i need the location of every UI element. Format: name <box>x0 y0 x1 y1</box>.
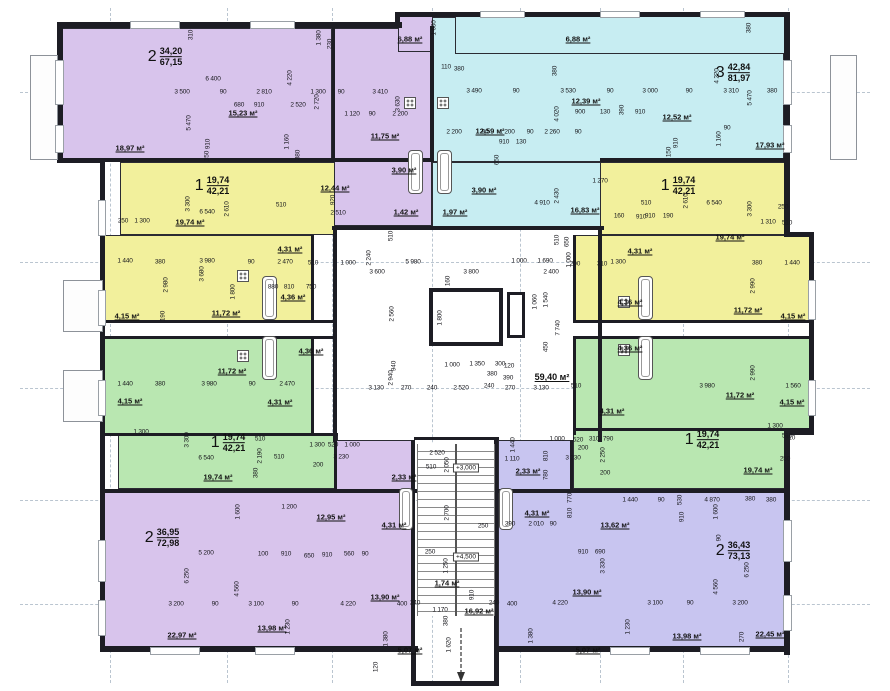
dimension-label: 190 <box>160 311 167 321</box>
room-area-label: 12,52 м² <box>663 113 692 122</box>
room-area-label: 4,31 м² <box>268 398 293 407</box>
balcony-outline <box>63 280 103 332</box>
apartment-unit-label: 119,7442,21 <box>211 432 245 454</box>
window-symbol <box>55 60 64 105</box>
dimension-label: 3 310 <box>723 88 738 95</box>
dimension-label: 100 <box>258 551 268 558</box>
dimension-label: 5 470 <box>747 90 754 105</box>
unit-area-fraction: 19,7442,21 <box>223 432 246 454</box>
dimension-label: 1 200 <box>281 504 296 511</box>
dimension-label: 200 <box>313 462 323 469</box>
dimension-label: 90 <box>527 129 534 136</box>
dimension-label: 1 300 <box>610 259 625 266</box>
dimension-label: 3 330 <box>600 558 607 573</box>
room-area-label: 2,33 м² <box>516 467 541 476</box>
unit-room-count: 2 <box>716 543 725 559</box>
dimension-label: 2 720 <box>314 94 321 109</box>
dimension-label: 6 540 <box>198 455 213 462</box>
dimension-label: 910 <box>645 213 655 220</box>
dimension-label: 3 230 <box>333 454 348 461</box>
dimension-label: 2 200 <box>446 129 461 136</box>
apartment-unit-label: 236,9572,98 <box>145 527 179 549</box>
apartment-unit-label: 119,7442,21 <box>685 429 719 451</box>
dimension-label: 2 610 <box>224 201 231 216</box>
dimension-label: 1 000 <box>549 436 564 443</box>
balcony-outline <box>30 55 58 160</box>
dimension-label: 3 630 <box>395 96 402 111</box>
stove-icon <box>404 97 416 109</box>
room-area-label: 1,42 м² <box>394 208 419 217</box>
dimension-label: 790 <box>603 436 613 443</box>
dimension-label: 380 <box>752 260 762 267</box>
dimension-label: 510 <box>554 235 561 245</box>
dimension-label: 380 <box>745 496 755 503</box>
dimension-label: 880 <box>268 284 278 291</box>
dimension-label: 250 <box>118 218 128 225</box>
dimension-label: 510 <box>276 202 286 209</box>
dimension-label: 380 <box>155 259 165 266</box>
dimension-label: 2 810 <box>256 89 271 96</box>
dimension-label: 1 000 <box>511 258 526 265</box>
dimension-label: 90 <box>686 88 693 95</box>
wall-segment <box>395 12 400 28</box>
room-area-label: 16,92 м² <box>465 607 494 616</box>
dimension-label: 200 <box>600 470 610 477</box>
dimension-label: 1 300 <box>133 429 148 436</box>
dimension-label: 3 200 <box>732 600 747 607</box>
apartment-region-apt-1room-right-lower <box>575 338 813 430</box>
wall-segment <box>573 320 813 323</box>
dimension-label: 270 <box>739 632 746 642</box>
dimension-label: 690 <box>595 549 605 556</box>
room-area-label: 12,44 м² <box>321 184 350 193</box>
apartment-unit-label: 234,2067,15 <box>148 46 182 68</box>
dimension-label: 90 <box>212 601 219 608</box>
dimension-label: 750 <box>306 284 316 291</box>
unit-total-area: 42,21 <box>697 441 720 451</box>
unit-living-area: 19,74 <box>673 175 696 186</box>
room-area-label: 5,07 м² <box>398 646 423 655</box>
wall-segment <box>311 235 314 322</box>
dimension-label: 3 980 <box>699 383 714 390</box>
dimension-label: 250 <box>778 204 788 211</box>
dimension-label: 90 <box>220 89 227 96</box>
floor-level-mark: +4,500 <box>453 553 479 562</box>
stove-icon <box>237 350 249 362</box>
dimension-label: 1 560 <box>785 383 800 390</box>
dimension-label: 4 560 <box>234 581 241 596</box>
window-symbol <box>700 647 750 655</box>
window-symbol <box>700 11 745 18</box>
dimension-label: 4 220 <box>552 600 567 607</box>
unit-room-count: 1 <box>195 178 204 194</box>
stove-icon <box>237 270 249 282</box>
dimension-label: 3 200 <box>168 601 183 608</box>
dimension-label: 130 <box>600 109 610 116</box>
dimension-label: 380 <box>767 88 777 95</box>
dimension-label: 910 <box>469 590 476 600</box>
window-symbol <box>98 540 106 582</box>
dimension-label: 530 <box>677 495 684 505</box>
dimension-label: 380 <box>746 23 753 33</box>
dimension-label: 1 000 <box>344 442 359 449</box>
window-symbol <box>808 280 816 320</box>
dimension-label: 770 <box>567 493 574 503</box>
dimension-label: 1 300 <box>309 442 324 449</box>
dimension-label: 510 <box>641 200 651 207</box>
wall-segment <box>573 336 813 339</box>
dimension-label: 130 <box>516 139 526 146</box>
room-area-label: 6,88 м² <box>398 35 423 44</box>
window-symbol <box>250 21 295 29</box>
dimension-label: 3 680 <box>199 266 206 281</box>
dimension-label: 3 980 <box>201 381 216 388</box>
dimension-label: 4 910 <box>534 200 549 207</box>
dimension-label: 560 <box>344 551 354 558</box>
dimension-label: 810 <box>567 508 574 518</box>
dimension-label: 2 510 <box>330 210 345 217</box>
unit-area-fraction: 42,8481,97 <box>728 62 751 84</box>
dimension-label: 380 <box>155 381 165 388</box>
dimension-label: 380 <box>443 616 450 626</box>
dimension-label: 310 <box>188 30 195 40</box>
dimension-label: 5 980 <box>405 259 420 266</box>
dimension-label: 910 <box>254 102 264 109</box>
unit-room-count: 3 <box>716 65 725 81</box>
dimension-label: 910 <box>281 551 291 558</box>
unit-total-area: 81,97 <box>728 74 751 84</box>
dimension-label: 1 540 <box>543 292 550 307</box>
room-area-label: 11,72 м² <box>734 306 762 315</box>
dimension-label: 910 <box>679 512 686 522</box>
unit-total-area: 42,21 <box>223 444 246 454</box>
dimension-label: 1 250 <box>443 558 450 573</box>
unit-area-fraction: 34,2067,15 <box>160 46 183 68</box>
dimension-label: 90 <box>575 129 582 136</box>
room-area-label: 11,72 м² <box>212 309 240 318</box>
unit-living-area: 42,84 <box>728 62 751 73</box>
dimension-label: 200 <box>578 445 588 452</box>
dimension-label: 6 250 <box>744 562 751 577</box>
window-symbol <box>610 647 650 655</box>
dimension-label: 2 400 <box>543 269 558 276</box>
dimension-label: 270 <box>505 385 515 392</box>
room-area-label: 11,72 м² <box>218 367 246 376</box>
room-area-label: 19,74 м² <box>204 473 233 482</box>
window-symbol <box>98 380 106 416</box>
dimension-label: 510 <box>388 231 395 241</box>
bathtub-icon <box>262 336 277 380</box>
dimension-label: 1 230 <box>625 619 632 634</box>
dimension-label: 3 530 <box>560 88 575 95</box>
dimension-label: 390 <box>619 105 626 115</box>
dimension-label: 240 <box>410 600 420 607</box>
floor-level-mark: +3,000 <box>453 464 479 473</box>
dimension-label: 1 300 <box>134 218 149 225</box>
dimension-label: 1 800 <box>230 284 237 299</box>
dimension-label: 1 000 <box>444 362 459 369</box>
dimension-label: 2 700 <box>444 505 451 520</box>
dimension-label: 2 010 <box>528 521 543 528</box>
dimension-label: 90 <box>338 89 345 96</box>
dimension-label: 2 520 <box>290 102 305 109</box>
room-area-label: 18,97 м² <box>116 144 145 153</box>
room-area-label: 1,97 м² <box>443 208 468 217</box>
wall-segment <box>570 440 573 490</box>
dimension-label: 3 980 <box>199 258 214 265</box>
dimension-label: 1 380 <box>528 628 535 643</box>
dimension-label: 2 990 <box>750 365 757 380</box>
room-area-label: 11,72 м² <box>726 391 754 400</box>
wall-segment <box>332 226 604 230</box>
dimension-label: 240 <box>484 383 494 390</box>
dimension-label: 4 870 <box>704 497 719 504</box>
dimension-label: 240 <box>427 385 437 392</box>
dimension-label: 1 380 <box>383 631 390 646</box>
wall-segment <box>100 489 418 493</box>
window-symbol <box>98 290 106 326</box>
room-area-label: 11,75 м² <box>371 132 399 141</box>
room-area-label: 4,36 м² <box>618 344 643 353</box>
dimension-label: 900 <box>575 109 585 116</box>
dimension-label: 4 220 <box>340 601 355 608</box>
dimension-label: 200 <box>570 261 580 268</box>
unit-area-fraction: 19,7442,21 <box>697 429 720 451</box>
bathtub-icon <box>437 150 452 194</box>
window-symbol <box>55 125 64 153</box>
dimension-label: 90 <box>482 129 489 136</box>
unit-area-fraction: 19,7442,21 <box>673 175 696 197</box>
dimension-label: 910 <box>499 139 509 146</box>
dimension-label: 1 160 <box>716 131 723 146</box>
dimension-label: 6 540 <box>706 200 721 207</box>
wall-segment <box>100 336 335 339</box>
wall-segment <box>494 489 790 493</box>
dimension-label: 1 380 <box>316 30 323 45</box>
unit-living-area: 19,74 <box>207 175 230 186</box>
dimension-label: 2 940 <box>388 370 395 385</box>
dimension-label: 380 <box>552 66 559 76</box>
dimension-label: 390 <box>503 375 513 382</box>
dimension-label: 380 <box>454 66 464 73</box>
dimension-label: 2 470 <box>279 381 294 388</box>
room-area-label: 13,98 м² <box>673 632 702 641</box>
dimension-label: 2 190 <box>257 448 264 463</box>
dimension-label: 160 <box>445 276 452 286</box>
unit-room-count: 1 <box>211 435 220 451</box>
wall-segment <box>57 158 434 162</box>
room-area-label: 3,90 м² <box>472 186 497 195</box>
room-area-label: 59,40 м² <box>535 372 570 382</box>
room-area-label: 4,31 м² <box>600 407 625 416</box>
dimension-label: 110 <box>441 64 451 71</box>
dimension-label: 4 020 <box>554 106 561 121</box>
room-area-label: 5,07 м² <box>576 646 601 655</box>
dimension-label: 510 <box>274 454 284 461</box>
dimension-label: 1 310 <box>760 219 775 226</box>
room-area-label: 4,31 м² <box>525 509 550 518</box>
dimension-label: 1 200 <box>499 129 514 136</box>
apartment-region-apt-3room-top-right <box>455 12 788 54</box>
dimension-label: 2 470 <box>277 259 292 266</box>
room-area-label: 4,36 м² <box>299 347 324 356</box>
room-area-label: 4,31 м² <box>382 521 407 530</box>
unit-total-area: 67,15 <box>160 58 183 68</box>
dimension-label: 1 110 <box>505 456 520 463</box>
dimension-label: 270 <box>401 385 411 392</box>
unit-room-count: 1 <box>685 432 694 448</box>
dimension-label: 90 <box>607 88 614 95</box>
dimension-label: 400 <box>507 601 517 608</box>
unit-living-area: 36,43 <box>728 540 751 551</box>
dimension-label: 1 270 <box>592 178 607 185</box>
room-area-label: 19,74 м² <box>744 466 773 475</box>
dimension-label: 910 <box>578 549 588 556</box>
dimension-label: 380 <box>295 150 302 160</box>
dimension-label: 2 430 <box>554 188 561 203</box>
dimension-label: 2 560 <box>389 306 396 321</box>
dimension-label: 1 620 <box>446 637 453 652</box>
dimension-label: 1 440 <box>117 381 132 388</box>
dimension-label: 2 980 <box>163 277 170 292</box>
apartment-region-apt-1room-right-upper <box>575 235 813 322</box>
dimension-label: 3 600 <box>369 269 384 276</box>
room-area-label: 13,62 м² <box>601 521 630 530</box>
room-area-label: 4,15 м² <box>781 312 806 321</box>
apartment-region-apt-2room-top-left <box>332 28 432 226</box>
dimension-label: 3 100 <box>647 600 662 607</box>
dimension-label: 160 <box>614 213 624 220</box>
dimension-label: 3 100 <box>248 601 263 608</box>
dimension-label: 780 <box>543 470 550 480</box>
unit-area-fraction: 19,7442,21 <box>207 175 230 197</box>
dimension-label: 450 <box>543 342 550 352</box>
dimension-label: 520 <box>573 437 583 444</box>
dimension-label: 90 <box>362 551 369 558</box>
dimension-label: 6 250 <box>184 568 191 583</box>
dimension-label: 5 470 <box>186 115 193 130</box>
dimension-label: 3 000 <box>642 88 657 95</box>
room-area-label: 4,15 м² <box>115 312 140 321</box>
window-symbol <box>480 11 525 18</box>
dimension-label: 910 <box>673 138 680 148</box>
dimension-label: 5 200 <box>198 550 213 557</box>
unit-area-fraction: 36,4373,13 <box>728 540 751 562</box>
room-area-label: 4,31 м² <box>628 247 653 256</box>
unit-total-area: 72,98 <box>157 539 180 549</box>
room-area-label: 4,15 м² <box>118 397 143 406</box>
window-symbol <box>783 595 792 631</box>
dimension-label: 2 520 <box>429 450 444 457</box>
wall-segment <box>411 681 499 686</box>
unit-living-area: 36,95 <box>157 527 180 538</box>
apartment-region-apt-2room-top-left <box>57 28 332 160</box>
dimension-label: 400 <box>397 601 407 608</box>
dimension-label: 510 <box>426 464 436 471</box>
dimension-label: 1 170 <box>432 607 447 614</box>
dimension-label: 1 630 <box>431 20 438 35</box>
unit-room-count: 2 <box>148 49 157 65</box>
room-area-label: 22,97 м² <box>168 631 197 640</box>
dimension-label: 510 <box>255 436 265 443</box>
dimension-label: 2 250 <box>600 447 607 462</box>
room-area-label: 13,90 м² <box>573 588 602 597</box>
unit-living-area: 34,20 <box>160 46 183 57</box>
dimension-label: 90 <box>249 381 256 388</box>
room-area-label: 1,74 м² <box>435 579 460 588</box>
apartment-unit-label: 236,4373,13 <box>716 540 750 562</box>
dimension-label: 510 <box>571 383 581 390</box>
room-area-label: 13,90 м² <box>371 593 400 602</box>
dimension-label: 4 560 <box>713 579 720 594</box>
window-symbol <box>98 200 106 236</box>
dimension-label: 650 <box>494 155 501 165</box>
wall-segment <box>573 235 576 322</box>
dimension-label: 90 <box>658 497 665 504</box>
dimension-label: 810 <box>284 284 294 291</box>
balcony-outline <box>63 370 103 422</box>
room-area-label: 19,74 м² <box>176 218 205 227</box>
dimension-label: 90 <box>513 88 520 95</box>
dimension-label: 6 540 <box>199 209 214 216</box>
dimension-label: 390 <box>505 521 515 528</box>
window-symbol <box>150 647 200 655</box>
dimension-label: 90 <box>248 259 255 266</box>
dimension-label: 380 <box>487 371 497 378</box>
dimension-label: 920 <box>330 195 337 205</box>
window-symbol <box>783 520 792 562</box>
dimension-label: 940 <box>391 361 398 371</box>
room-area-label: 2,33 м² <box>392 473 417 482</box>
room-area-label: 3,90 м² <box>392 166 417 175</box>
stove-icon <box>437 97 449 109</box>
room-area-label: 19,74 м² <box>716 233 745 242</box>
dimension-label: 910 <box>635 109 645 116</box>
unit-total-area: 42,21 <box>207 187 230 197</box>
dimension-label: 3 410 <box>372 89 387 96</box>
apartment-region-apt-1room-left-upper <box>120 162 335 235</box>
dimension-label: 150 <box>204 151 211 161</box>
dimension-label: 90 <box>550 521 557 528</box>
wall-segment <box>430 26 434 162</box>
dimension-label: 1 440 <box>622 497 637 504</box>
window-symbol <box>783 60 792 105</box>
unit-total-area: 42,21 <box>673 187 696 197</box>
dimension-label: 150 <box>666 147 673 157</box>
dimension-label: 1 690 <box>537 258 552 265</box>
wall-segment <box>600 158 790 162</box>
dimension-label: 250 <box>425 549 435 556</box>
dimension-label: 90 <box>292 601 299 608</box>
dimension-label: 3 500 <box>174 89 189 96</box>
dimension-label: 250 <box>478 523 488 530</box>
apartment-unit-label: 119,7442,21 <box>661 175 695 197</box>
apartment-region-apt-3room-top-right <box>432 162 604 228</box>
dimension-label: 1 230 <box>285 619 292 634</box>
dimension-label: 3 300 <box>185 196 192 211</box>
room-area-label: 12,39 м² <box>572 97 601 106</box>
dimension-label: 650 <box>304 553 314 560</box>
dimension-label: 120 <box>373 662 380 672</box>
dimension-label: 3 230 <box>565 455 580 462</box>
dimension-label: 1 120 <box>344 111 359 118</box>
dimension-label: 90 <box>687 600 694 607</box>
dimension-label: 310 <box>597 261 607 268</box>
dimension-label: 810 <box>543 451 550 461</box>
room-area-label: 13,98 м² <box>258 624 287 633</box>
unit-room-count: 2 <box>145 530 154 546</box>
apartment-unit-label: 342,8481,97 <box>716 62 750 84</box>
